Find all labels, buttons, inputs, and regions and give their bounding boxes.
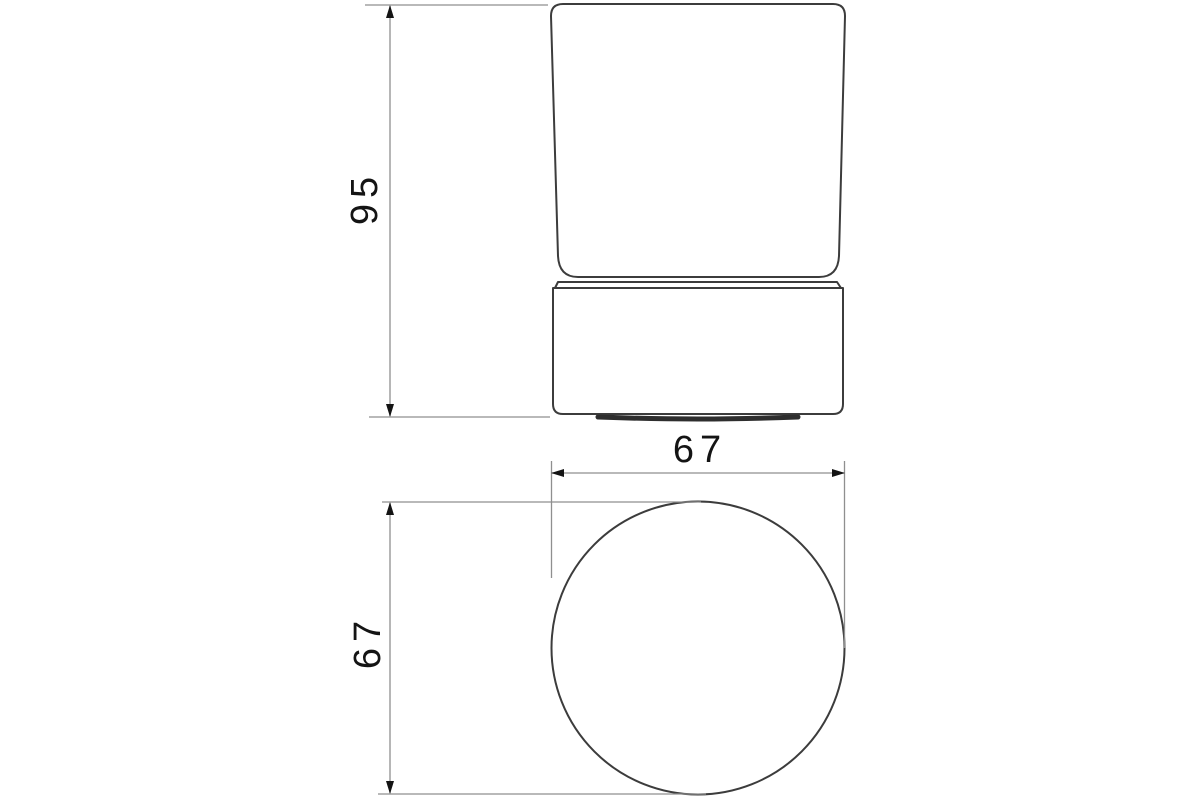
arrow-down-icon xyxy=(386,404,394,417)
drawing-canvas: 95 67 67 xyxy=(0,0,1200,800)
top-view-circle xyxy=(552,502,845,795)
arrow-up-icon xyxy=(386,502,394,515)
arrow-up-icon xyxy=(386,5,394,18)
base-foot-shadow xyxy=(598,417,798,419)
top-view xyxy=(552,502,845,795)
arrow-down-icon xyxy=(386,781,394,794)
cup-outline xyxy=(551,4,845,277)
arrow-right-icon xyxy=(832,469,845,477)
depth-dimension-value: 67 xyxy=(347,615,389,669)
base-body xyxy=(553,288,843,414)
height-dimension: 95 xyxy=(344,5,550,417)
width-dimension-value: 67 xyxy=(673,429,727,471)
front-view xyxy=(551,4,845,419)
width-dimension: 67 xyxy=(551,429,845,648)
height-dimension-value: 95 xyxy=(344,171,386,225)
arrow-left-icon xyxy=(551,469,564,477)
technical-drawing: 95 67 67 xyxy=(0,0,1200,800)
depth-dimension: 67 xyxy=(347,502,706,794)
